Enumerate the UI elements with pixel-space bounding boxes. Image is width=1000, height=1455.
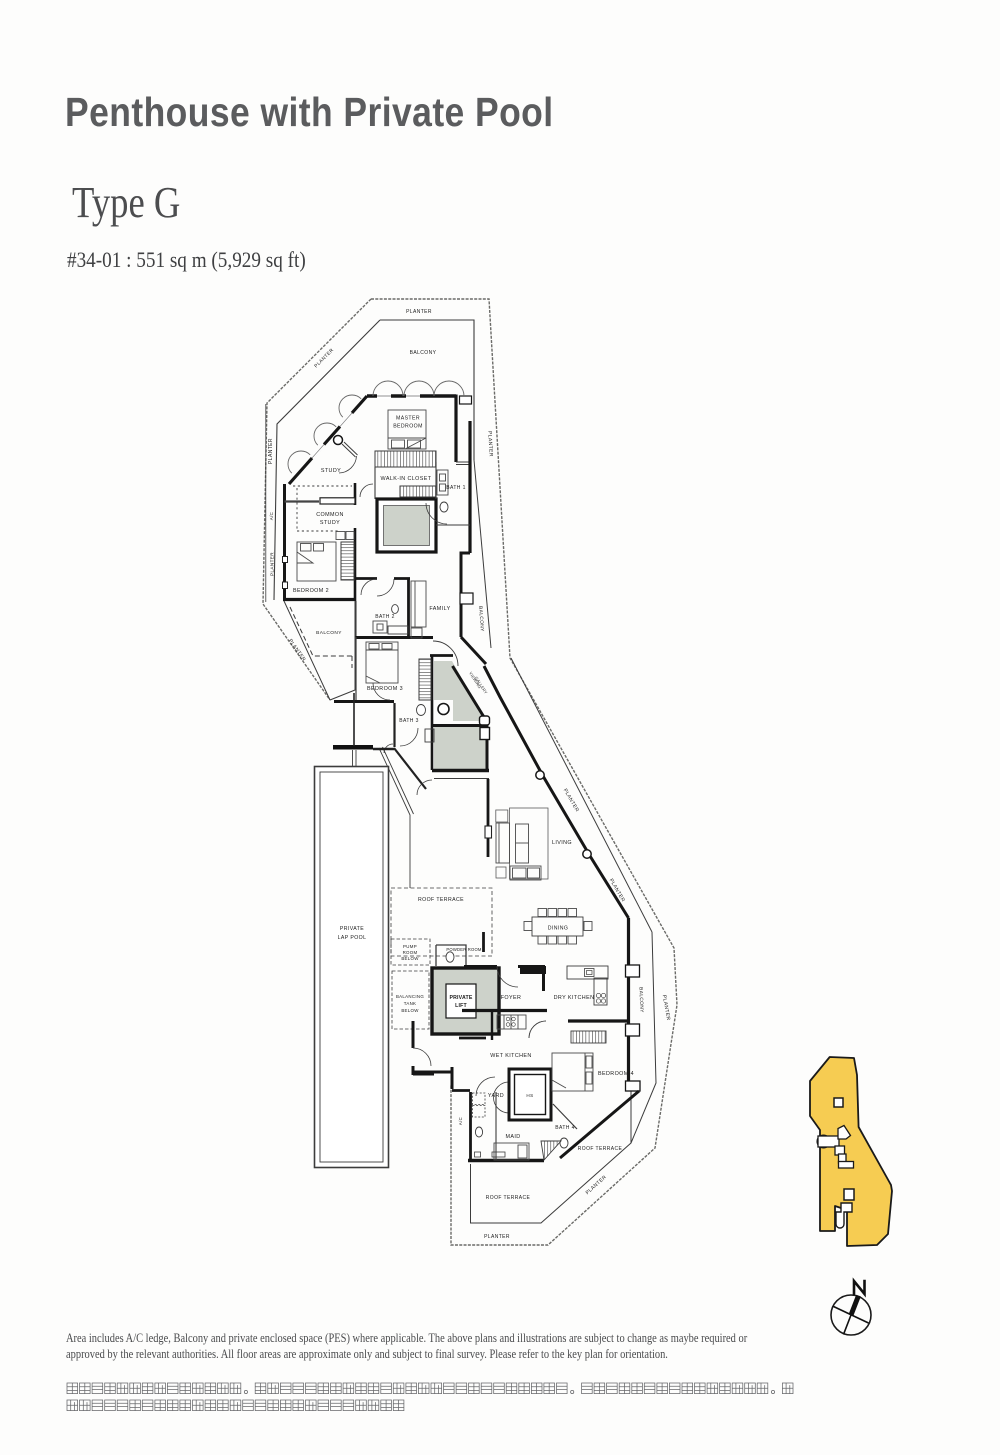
svg-text:STUDY: STUDY [320, 520, 340, 526]
svg-text:PLANTER: PLANTER [268, 438, 274, 464]
svg-text:PLANTER: PLANTER [270, 552, 275, 576]
svg-text:HS: HS [526, 1093, 533, 1098]
svg-text:PLANTER: PLANTER [486, 431, 493, 457]
svg-text:WALK-IN CLOSET: WALK-IN CLOSET [381, 476, 432, 482]
svg-text:A/C: A/C [269, 512, 274, 521]
svg-text:A/C: A/C [458, 1117, 463, 1125]
svg-text:FAMILY: FAMILY [429, 606, 450, 612]
svg-text:BATH 1: BATH 1 [446, 485, 466, 491]
svg-text:BEDROOM: BEDROOM [393, 424, 423, 430]
svg-text:PRIVATE: PRIVATE [449, 995, 472, 1001]
svg-text:BALCONY: BALCONY [477, 606, 485, 632]
svg-text:BATH 3: BATH 3 [399, 718, 419, 724]
svg-text:FOYER: FOYER [501, 995, 522, 1001]
svg-text:DINING: DINING [548, 926, 569, 932]
svg-text:PLANTER: PLANTER [562, 788, 580, 813]
svg-text:PLANTER: PLANTER [661, 995, 671, 1022]
svg-text:STUDY: STUDY [321, 468, 341, 474]
svg-text:PLANTER: PLANTER [406, 309, 432, 315]
svg-text:PRIVATE: PRIVATE [340, 926, 364, 932]
svg-text:YARD: YARD [488, 1093, 504, 1099]
svg-text:BALCONY: BALCONY [316, 630, 342, 636]
svg-text:PLANTER: PLANTER [287, 638, 307, 663]
svg-text:WET KITCHEN: WET KITCHEN [490, 1053, 531, 1059]
svg-text:PLANTER: PLANTER [484, 1234, 510, 1240]
svg-text:BELOW: BELOW [401, 956, 419, 961]
svg-text:BEDROOM 4: BEDROOM 4 [598, 1071, 634, 1077]
svg-text:MAID: MAID [505, 1134, 520, 1140]
svg-text:PLANTER: PLANTER [313, 347, 335, 369]
svg-text:BEDROOM 3: BEDROOM 3 [367, 686, 403, 692]
svg-text:BATH 4: BATH 4 [555, 1125, 575, 1131]
svg-text:LAP POOL: LAP POOL [338, 935, 367, 941]
svg-text:LIFT: LIFT [455, 1003, 467, 1009]
svg-text:COMMON: COMMON [316, 512, 344, 518]
svg-text:ROOF TERRACE: ROOF TERRACE [486, 1195, 531, 1201]
svg-text:DRY KITCHEN: DRY KITCHEN [554, 995, 595, 1001]
svg-text:PUMP: PUMP [403, 944, 417, 949]
svg-text:ROOM: ROOM [403, 950, 418, 955]
svg-text:BATH 2: BATH 2 [375, 614, 395, 620]
svg-text:BELOW: BELOW [401, 1008, 419, 1013]
svg-text:ROOF TERRACE: ROOF TERRACE [418, 897, 464, 903]
svg-text:LIVING: LIVING [552, 840, 572, 846]
svg-text:BALANCING: BALANCING [396, 994, 424, 999]
svg-text:ROOF TERRACE: ROOF TERRACE [578, 1146, 623, 1152]
svg-text:TANK: TANK [404, 1001, 417, 1006]
svg-text:BEDROOM 2: BEDROOM 2 [293, 588, 329, 594]
svg-text:BALCONY: BALCONY [410, 350, 437, 356]
svg-text:MASTER: MASTER [396, 416, 420, 422]
svg-text:BALCONY: BALCONY [638, 987, 645, 1013]
svg-text:POWDER ROOM: POWDER ROOM [446, 947, 482, 952]
